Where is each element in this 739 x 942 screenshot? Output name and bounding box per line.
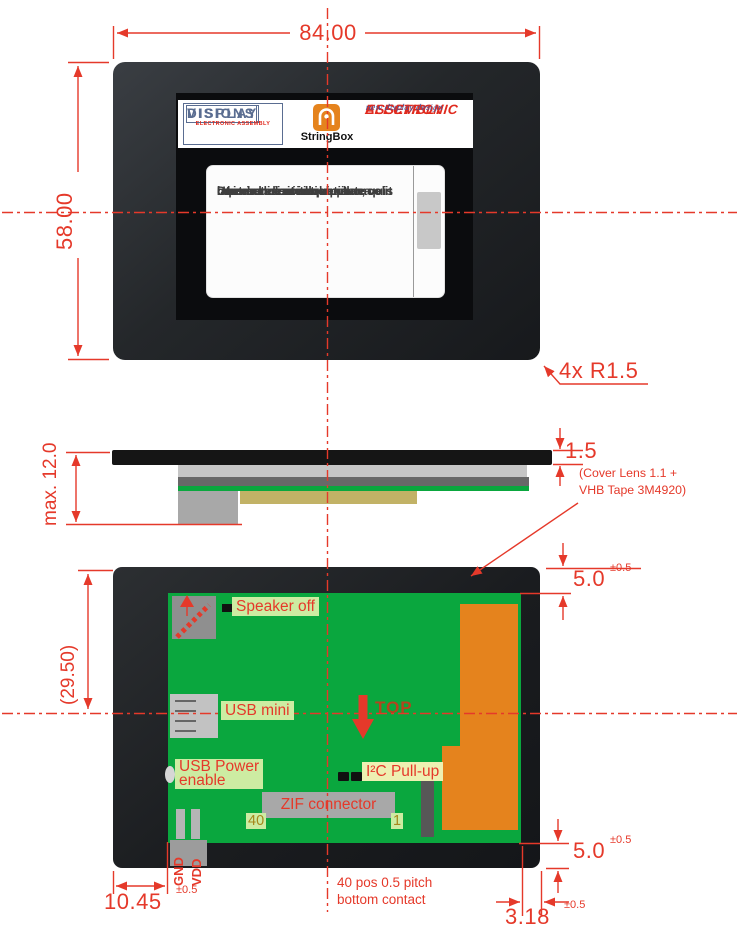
usb-power-enable-pad xyxy=(165,766,175,783)
ea-logo-tagline: new display design xyxy=(365,103,447,113)
dim-contact-edge: 3.18 xyxy=(505,904,550,930)
side-view-frame-layer xyxy=(178,477,529,486)
dim-cover-lens: 1.5 xyxy=(565,438,597,464)
vdd-pin xyxy=(191,809,200,839)
scrollbar-track-divider xyxy=(413,166,414,297)
usb-mini-label: USB mini xyxy=(221,701,294,720)
usb-mini-connector xyxy=(170,694,218,738)
i2c-pullup-resistor xyxy=(351,772,362,781)
corner-radius-note: 4x R1.5 xyxy=(559,358,638,384)
contact-note-line1: 40 pos 0.5 pitch xyxy=(337,875,432,890)
side-view-connector-layer xyxy=(240,491,417,504)
dim-pcb-height: (29.50) xyxy=(58,591,80,705)
stringbox-icon xyxy=(313,104,340,131)
datasheet-drawing: DISPLAY VISIONS ELECTRONIC ASSEMBLY Stri… xyxy=(0,0,739,942)
usb-power-line2: enable xyxy=(179,774,259,788)
logo-subtext: ELECTRONIC ASSEMBLY xyxy=(184,121,282,127)
dim-contact-edge-tolerance: ±0.5 xyxy=(564,899,585,911)
side-view-display-module xyxy=(178,465,527,477)
zif-connector-label: ZIF connector xyxy=(281,796,377,814)
dim-height-58: 58.00 xyxy=(52,178,78,250)
zif-pin-40-label: 40 xyxy=(246,813,266,829)
flex-connector-orange-step xyxy=(442,746,461,830)
vdd-label: VDD xyxy=(189,838,204,886)
zif-pin-1-label: 1 xyxy=(391,813,403,829)
cover-lens-note-line1: (Cover Lens 1.1 + xyxy=(579,466,677,480)
dim-pcb-top-offset: 5.0 xyxy=(573,566,605,592)
screen-text-line: reprehenderit in voluptate velit xyxy=(217,184,392,201)
scrollbar-thumb xyxy=(417,192,441,249)
i2c-pullup-label: I²C Pull-up xyxy=(362,762,443,781)
speaker-component xyxy=(172,596,216,639)
dim-pcb-top-tolerance: ±0.5 xyxy=(610,562,631,574)
stringbox-label: StringBox xyxy=(298,131,356,143)
dim-pcb-bottom-tolerance: ±0.5 xyxy=(610,834,631,846)
side-view-cover-lens xyxy=(112,450,552,465)
contact-note-line2: bottom contact xyxy=(337,892,426,907)
top-orientation-label: TOP xyxy=(375,698,413,718)
side-view-usb-block xyxy=(178,491,238,525)
usb-power-enable-label: USB Power enable xyxy=(175,759,263,789)
zif-connector-component: ZIF connector xyxy=(262,792,395,818)
dim-max-height: max. 12.0 xyxy=(40,420,62,526)
gnd-label: GND xyxy=(171,838,186,886)
dim-usb-offset: 10.45 xyxy=(104,889,162,915)
flex-connector-orange xyxy=(460,604,518,830)
dim-pcb-bottom-offset: 5.0 xyxy=(573,838,605,864)
speaker-label: Speaker off xyxy=(232,597,319,616)
cover-lens-note-line2: VHB Tape 3M4920) xyxy=(579,483,686,497)
i2c-pullup-resistor xyxy=(338,772,349,781)
gnd-pin xyxy=(176,809,185,839)
dim-width-84: 84.00 xyxy=(292,20,364,46)
logo-strip: DISPLAY VISIONS ELECTRONIC ASSEMBLY Stri… xyxy=(178,100,473,148)
display-visions-logo: DISPLAY VISIONS ELECTRONIC ASSEMBLY xyxy=(183,103,283,145)
speaker-jumper xyxy=(222,604,232,612)
